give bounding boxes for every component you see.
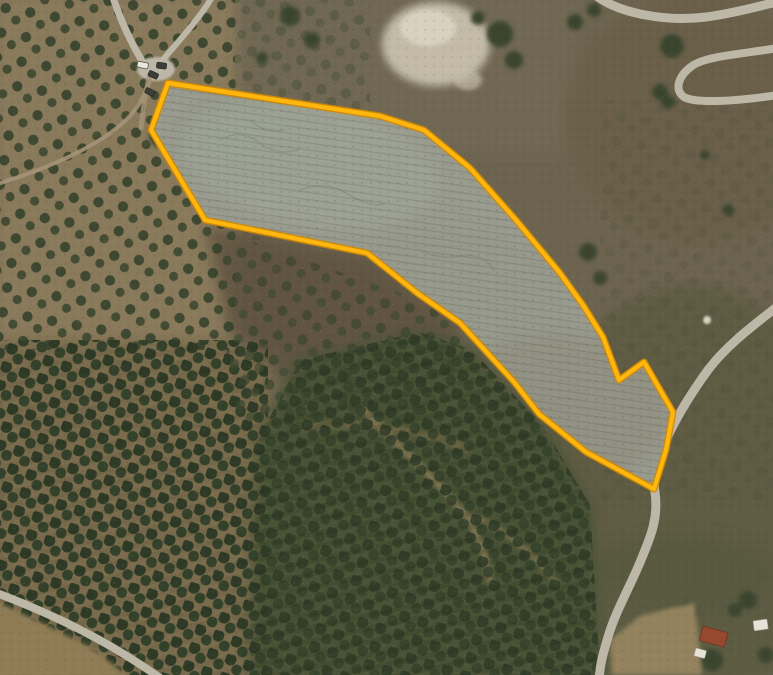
image-noise (0, 0, 773, 675)
map-canvas (0, 0, 773, 675)
satellite-map[interactable] (0, 0, 773, 675)
car-dark-1 (156, 62, 167, 69)
building-white-right (753, 619, 768, 631)
